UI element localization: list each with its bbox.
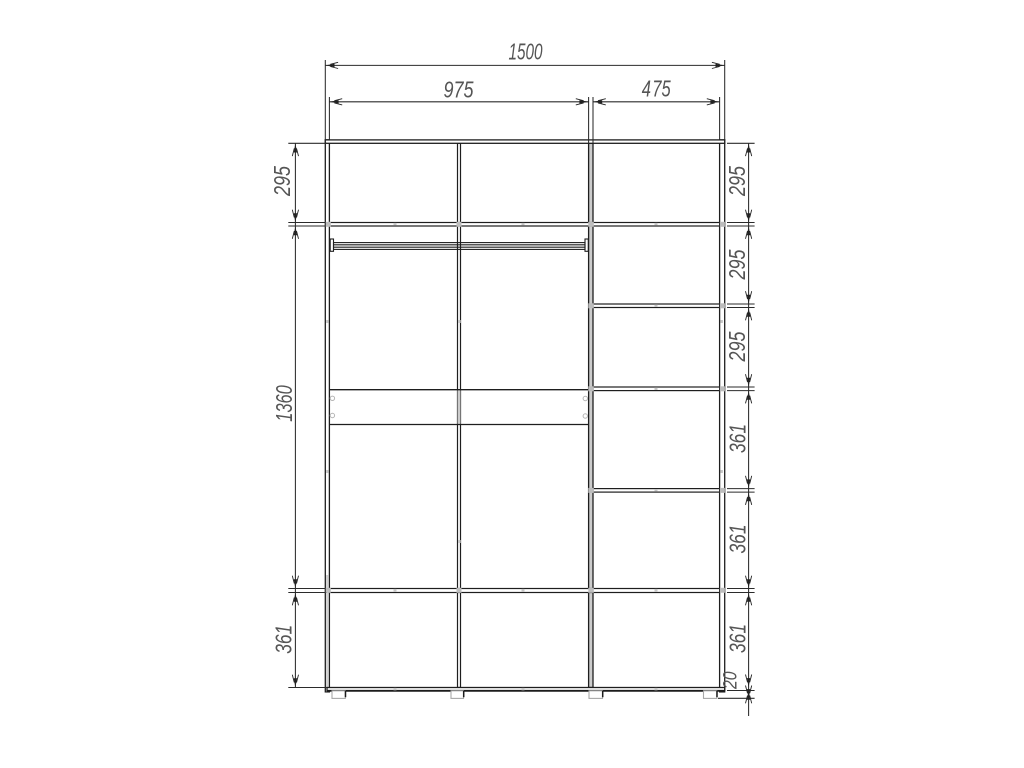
- svg-text:1500: 1500: [509, 39, 543, 65]
- svg-text:975: 975: [444, 76, 474, 102]
- svg-text:361: 361: [725, 624, 751, 653]
- svg-text:295: 295: [724, 249, 750, 280]
- svg-text:4 75: 4 75: [642, 76, 671, 102]
- svg-text:295: 295: [269, 166, 295, 197]
- svg-text:295: 295: [724, 331, 750, 362]
- svg-text:361: 361: [271, 625, 297, 654]
- svg-text:20: 20: [721, 671, 742, 690]
- svg-text:361: 361: [725, 525, 751, 554]
- svg-text:295: 295: [724, 166, 750, 197]
- svg-text:361: 361: [725, 424, 751, 453]
- svg-text:1360: 1360: [271, 385, 297, 422]
